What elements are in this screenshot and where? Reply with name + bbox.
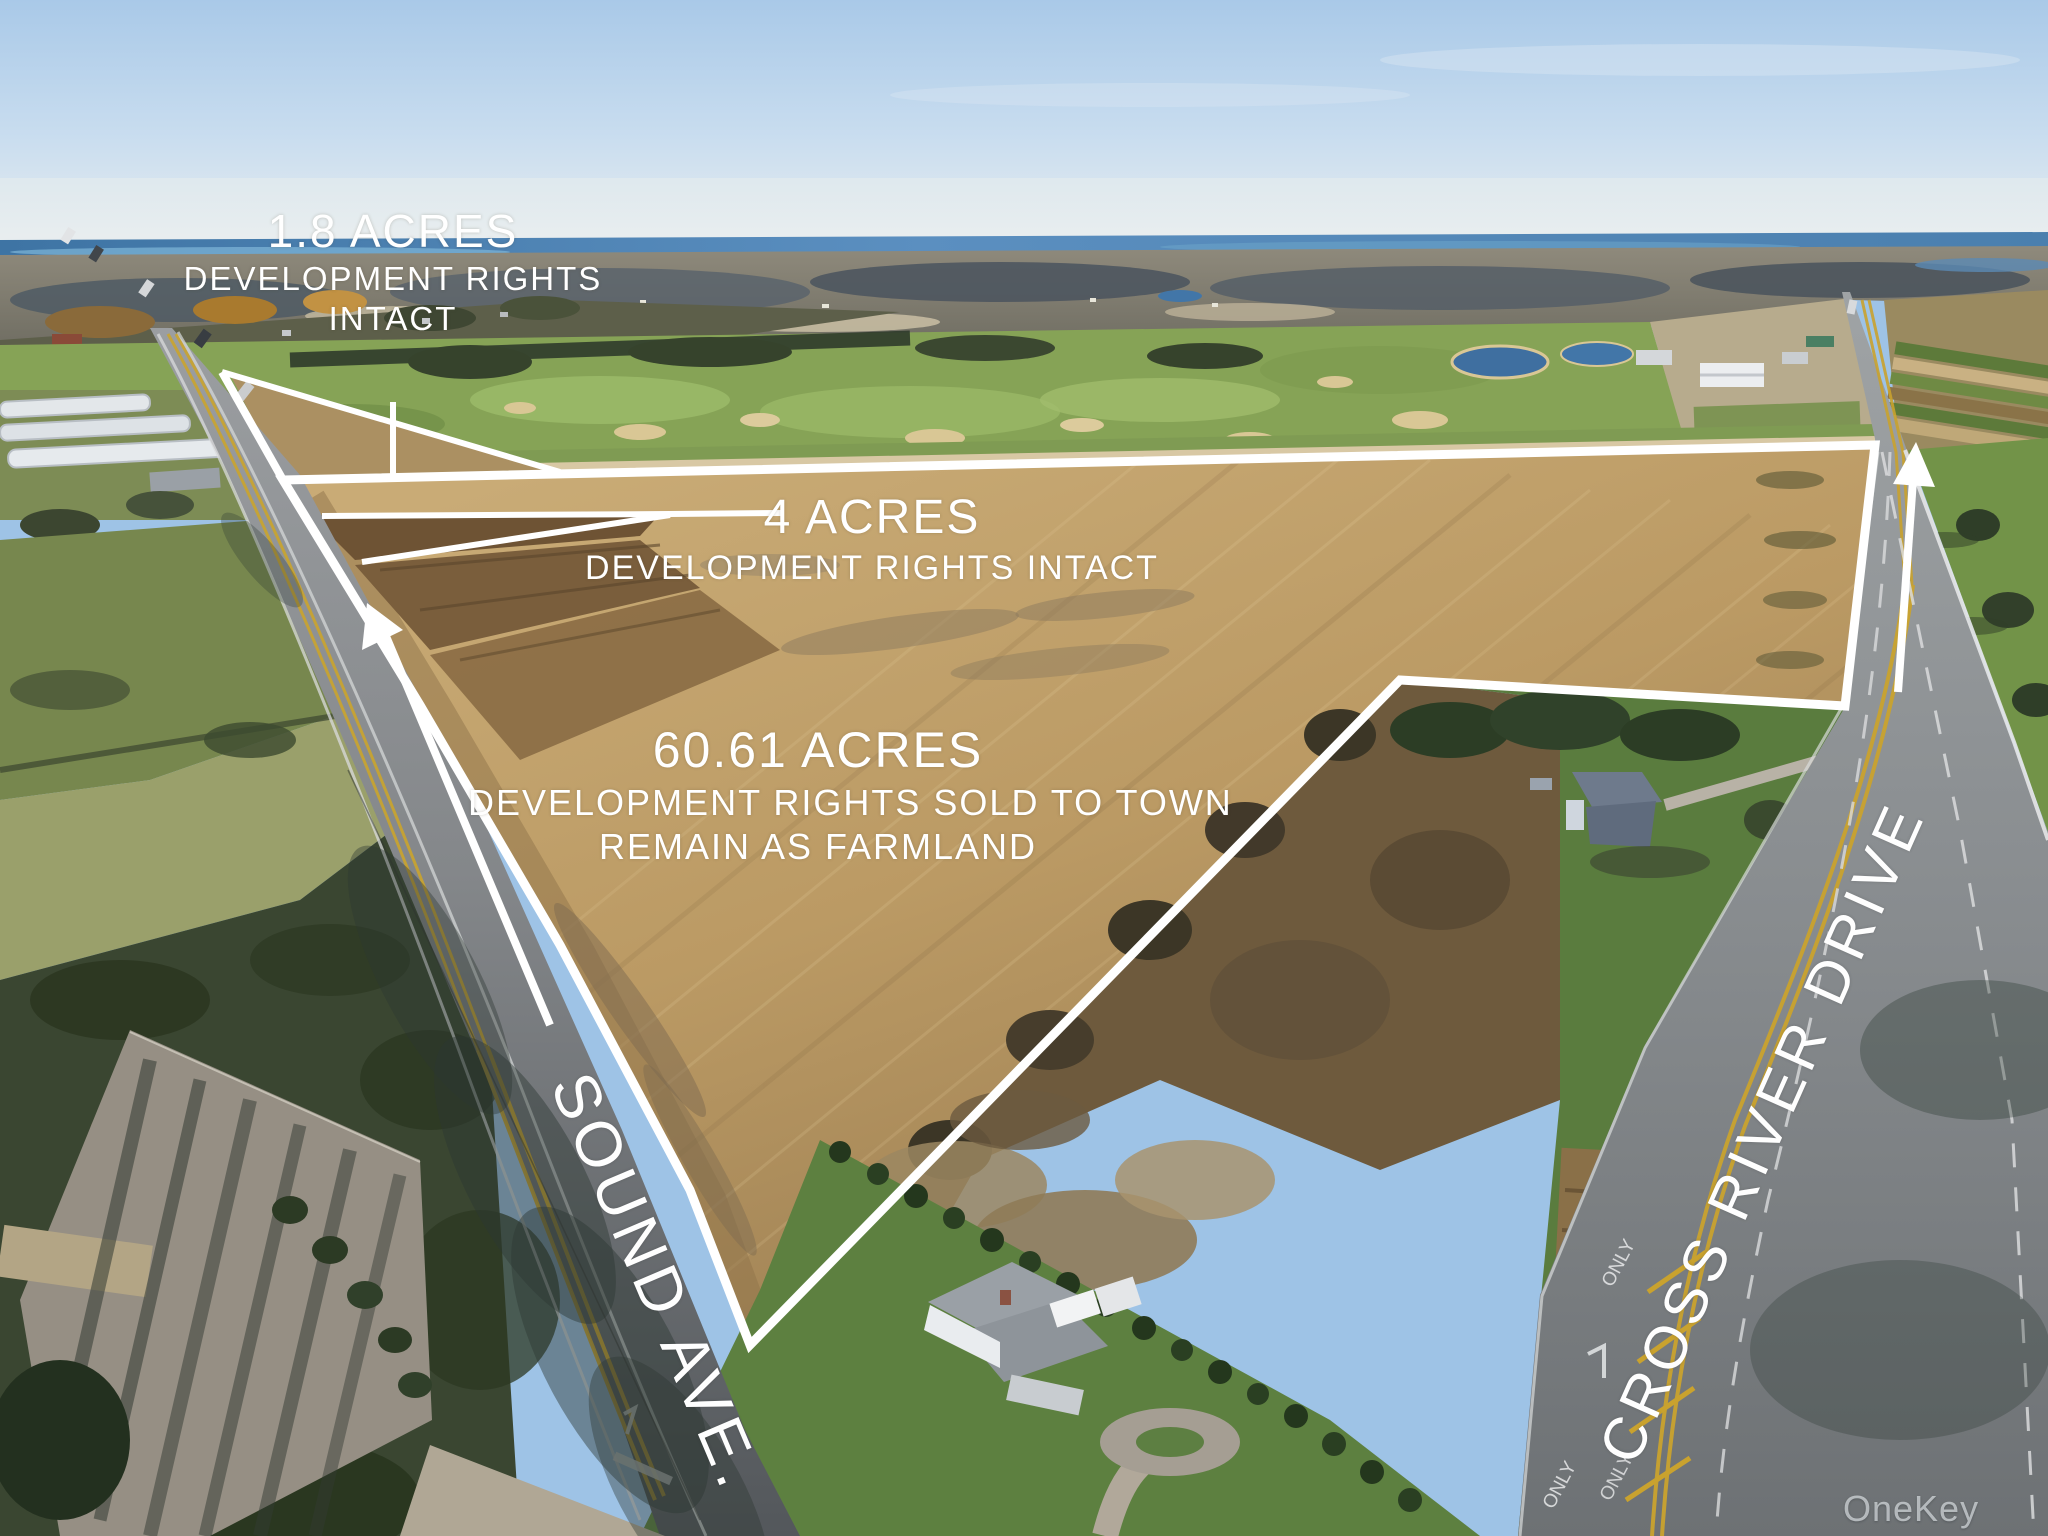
parcel-detail: REMAIN AS FARMLAND: [468, 825, 1168, 869]
parcel-acreage: 4 ACRES: [572, 489, 1172, 548]
mls-watermark: OneKey MLS: [1843, 1488, 2048, 1536]
parcel-detail: DEVELOPMENT RIGHTS SOLD TO TOWN: [468, 781, 1168, 825]
parcel-detail: INTACT: [93, 299, 693, 339]
parcel-detail: DEVELOPMENT RIGHTS INTACT: [572, 548, 1172, 589]
parcel-label-1-8-acres: 1.8 ACRES DEVELOPMENT RIGHTS INTACT: [93, 203, 693, 340]
parcel-acreage: 60.61 ACRES: [468, 720, 1168, 781]
parcel-label-60-61-acres: 60.61 ACRES DEVELOPMENT RIGHTS SOLD TO T…: [468, 720, 1168, 869]
parcel-label-4-acres: 4 ACRES DEVELOPMENT RIGHTS INTACT: [572, 489, 1172, 589]
parcel-detail: DEVELOPMENT RIGHTS: [93, 259, 693, 299]
aerial-photo-scene: ONLY ONLY ONLY 1.8 ACRES DEVELOPMENT RIG…: [0, 0, 2048, 1536]
parcel-acreage: 1.8 ACRES: [93, 203, 693, 259]
